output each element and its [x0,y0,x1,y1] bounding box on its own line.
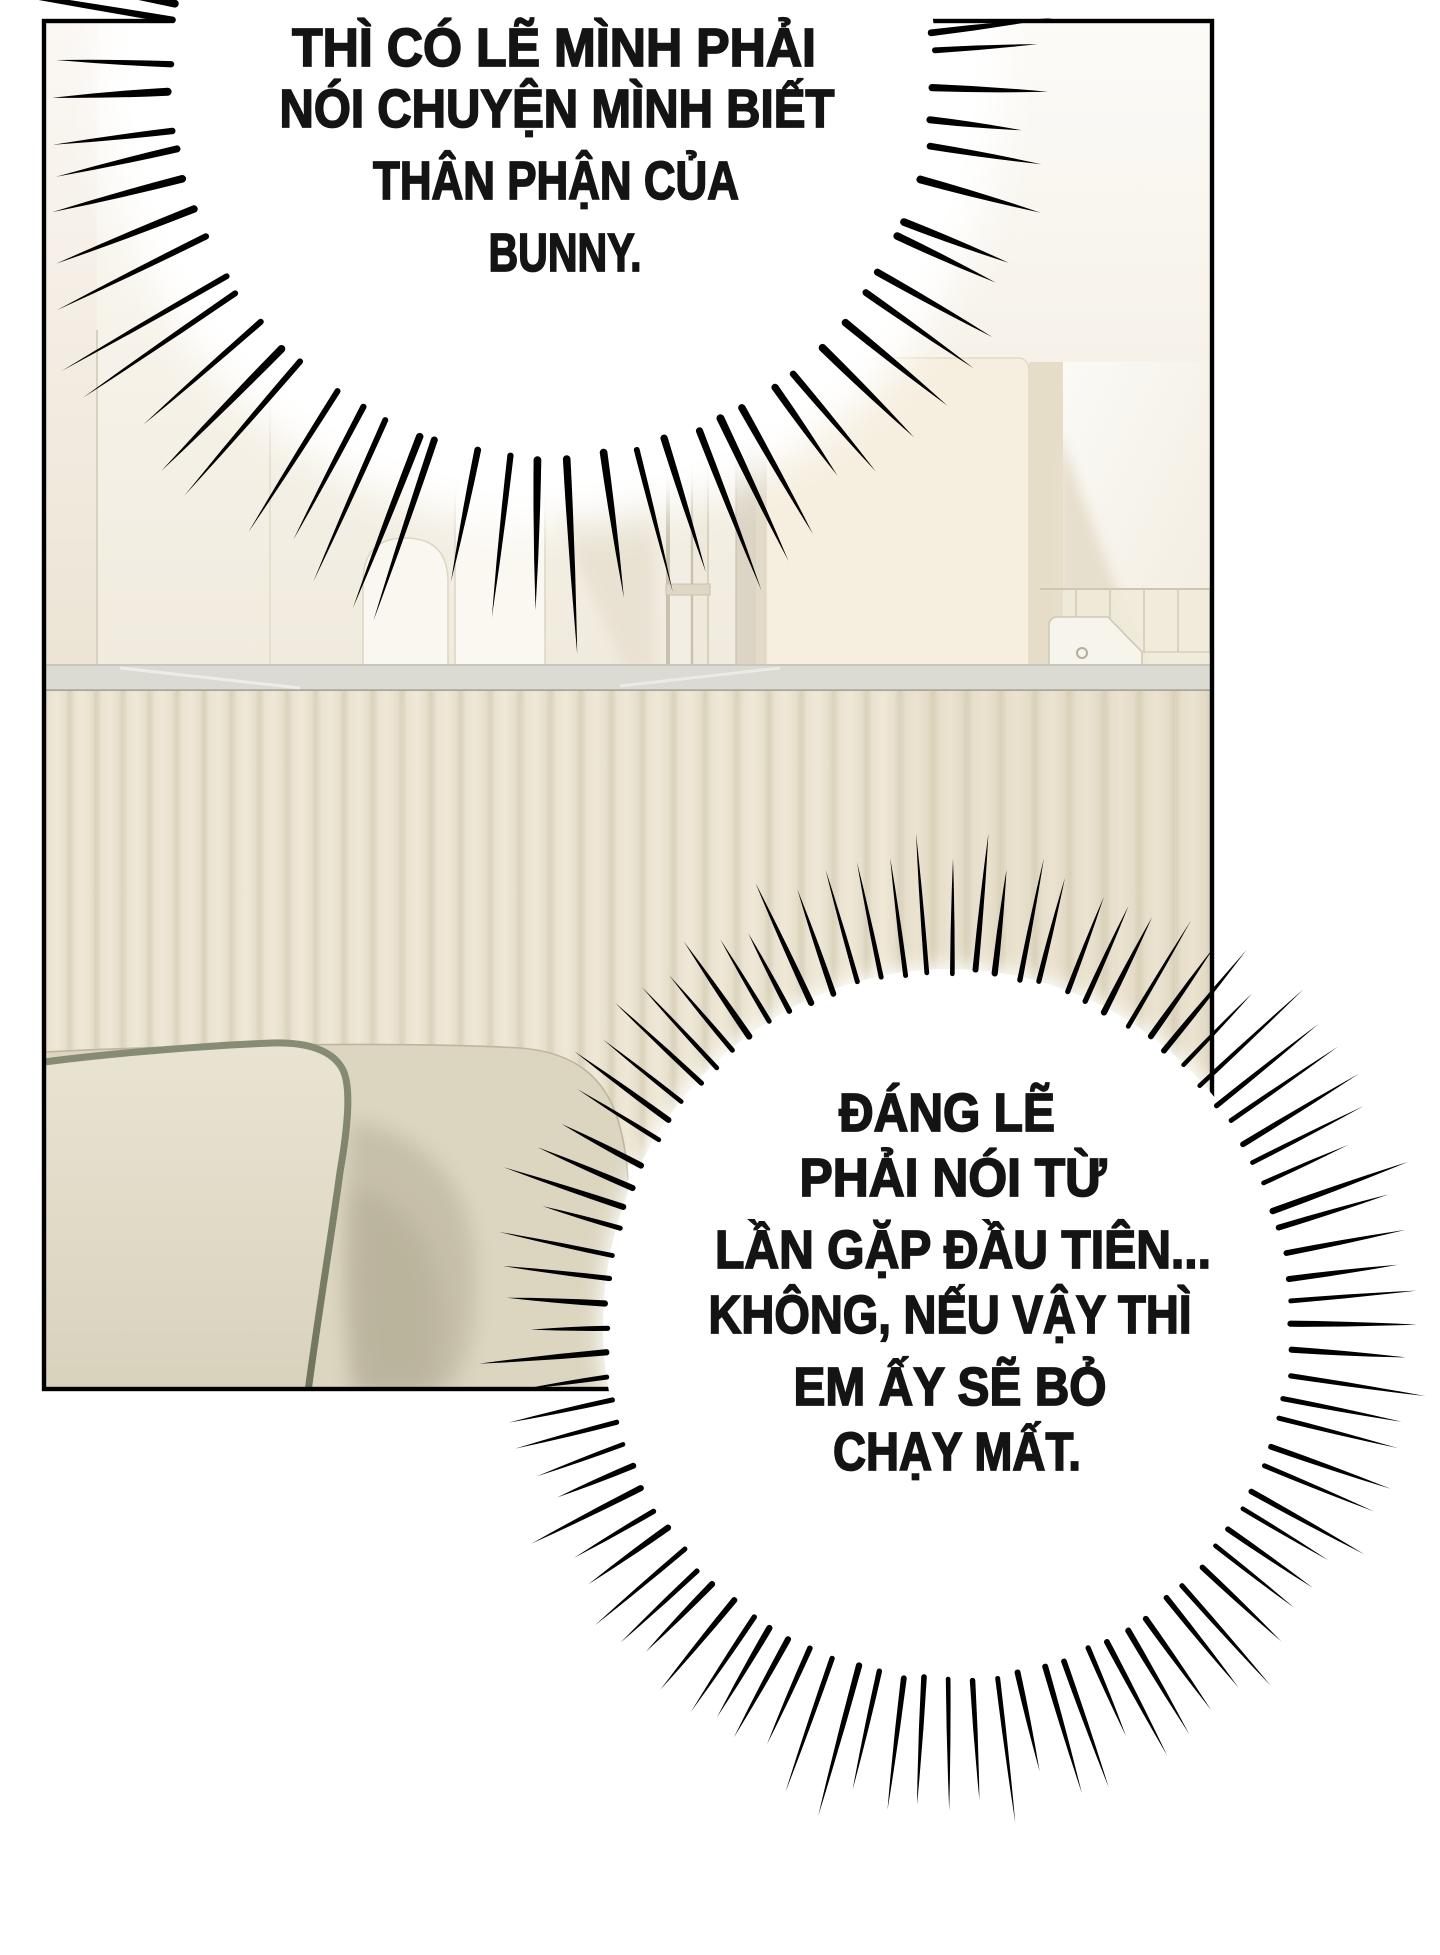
svg-text:NÓI CHUYỆN MÌNH BIẾT: NÓI CHUYỆN MÌNH BIẾT [280,78,835,139]
svg-text:KHÔNG, NẾU VẬY THÌ: KHÔNG, NẾU VẬY THÌ [709,1284,1192,1345]
svg-text:THÌ CÓ LẼ MÌNH PHẢI: THÌ CÓ LẼ MÌNH PHẢI [292,18,816,78]
svg-text:EM ẤY SẼ BỎ: EM ẤY SẼ BỎ [794,1357,1107,1417]
svg-text:PHẢI NÓI TỪ: PHẢI NÓI TỪ [800,1148,1107,1208]
svg-text:ĐÁNG LẼ: ĐÁNG LẼ [839,1083,1055,1143]
svg-text:CHẠY MẤT.: CHẠY MẤT. [833,1422,1081,1482]
svg-text:LẦN GẶP ĐẦU TIÊN...: LẦN GẶP ĐẦU TIÊN... [715,1219,1211,1280]
svg-text:BUNNY.: BUNNY. [489,223,642,283]
svg-text:THÂN PHẬN CỦA: THÂN PHẬN CỦA [373,150,739,211]
